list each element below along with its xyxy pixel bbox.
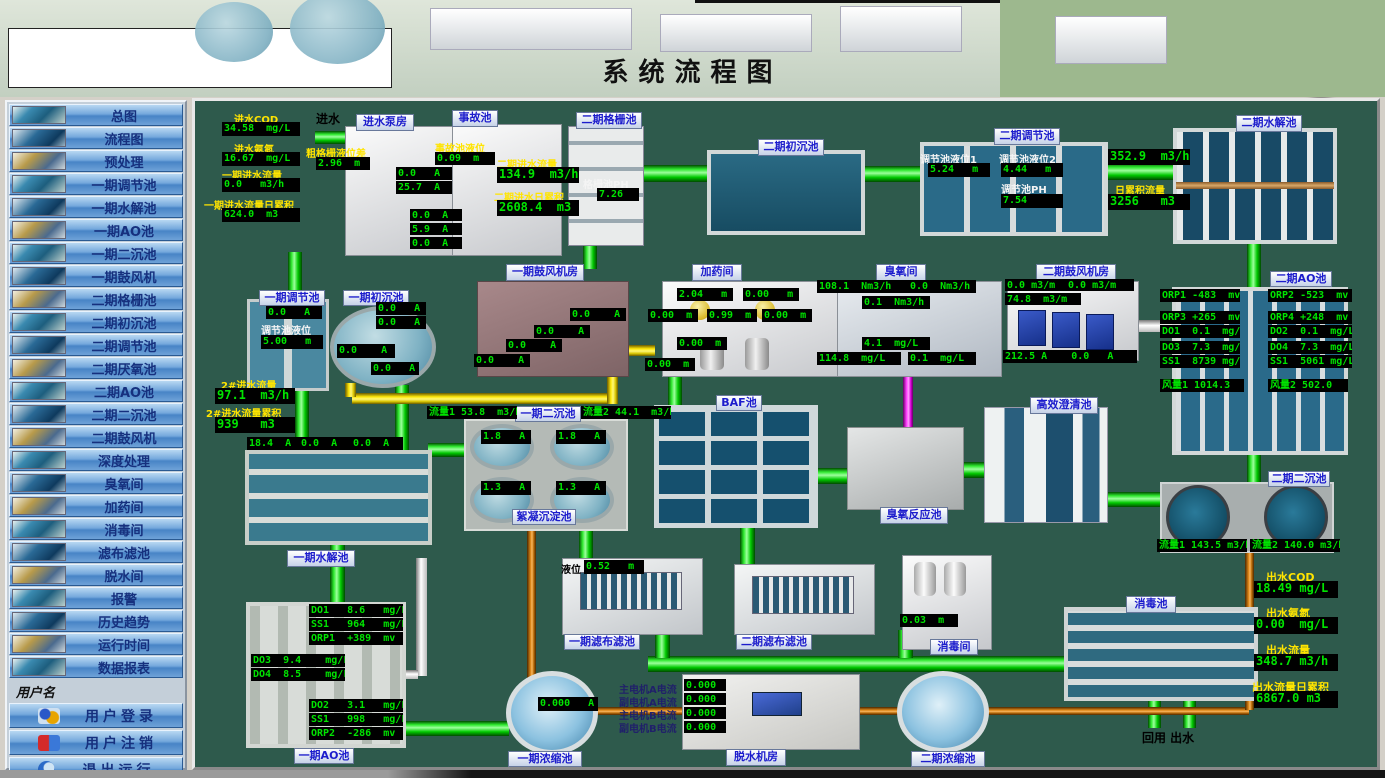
ao2-value: ORP1 -483 mv [1160, 289, 1240, 302]
pipe [405, 721, 509, 736]
nav-thumbnail-icon [12, 566, 66, 584]
reg1-current: 0.0 A [266, 306, 322, 319]
equipment-label: 脱水机房 [726, 749, 786, 766]
sidebar-item[interactable]: 二期初沉池 [9, 311, 183, 333]
ao1-value: SS1 964 mg/L [309, 618, 403, 631]
header-tank-icon [195, 2, 273, 62]
sidebar-item[interactable]: 数据报表 [9, 656, 183, 678]
clar1-flow2: 流量2 44.1 m3/h [581, 406, 671, 419]
sidebar-item[interactable]: 臭氧间 [9, 472, 183, 494]
pump-current: 25.7 A [396, 181, 452, 194]
pump-current: 0.0 A [410, 209, 462, 221]
ao1-value: ORP2 -286 mv [309, 727, 403, 740]
equipment-label: 一期滤布滤池 [564, 634, 640, 650]
disinfection-tank [1064, 607, 1258, 701]
sidebar-item[interactable]: 一期AO池 [9, 219, 183, 241]
pump-current: 0.0 A [299, 437, 351, 450]
inlet-total1-value: 624.0 m3 [222, 208, 300, 222]
blower1-current: 0.0 A [570, 308, 626, 321]
grid-ph-value: 7.26 [597, 188, 639, 201]
dosing-level: 0.00 m [762, 309, 812, 322]
equipment-label: 一期二沉池 [515, 406, 581, 422]
equipment-label: 一期鼓风机房 [506, 264, 584, 281]
ao2-value: ORP3 +265 mv [1160, 311, 1240, 324]
equipment-label: 二期水解池 [1236, 115, 1302, 132]
pipe [428, 443, 466, 457]
sidebar-item[interactable]: 一期鼓风机 [9, 265, 183, 287]
thickener-2 [897, 671, 989, 753]
sidebar-item[interactable]: 加药间 [9, 495, 183, 517]
equipment-label: 一期水解池 [287, 550, 355, 567]
nav-thumbnail-icon [12, 543, 66, 561]
tan-pipe [1176, 182, 1334, 189]
pump-current: 18.4 A [247, 437, 299, 450]
primary-tank-2 [707, 150, 865, 235]
clar2-flow2: 流量2 140.0 m3/h [1250, 539, 1340, 552]
pump-current: 5.9 A [410, 223, 462, 235]
nav-thumbnail-icon [12, 244, 66, 262]
nav-thumbnail-icon [12, 405, 66, 423]
nav-thumbnail-icon [12, 175, 66, 193]
ozone-value: 114.8 mg/L [817, 352, 901, 365]
primary1-current: 0.0 A [376, 316, 426, 329]
ao1-value: DO2 3.1 mg/L [309, 699, 403, 712]
sidebar-item[interactable]: 历史趋势 [9, 610, 183, 632]
nav-thumbnail-icon [12, 267, 66, 285]
inflow2-flow: 97.1 m3/h [215, 388, 295, 404]
nav-thumbnail-icon [12, 336, 66, 354]
nav-thumbnail-icon [12, 106, 66, 124]
equipment-label: 臭氧间 [876, 264, 926, 281]
inlet-nh3-value: 16.67 mg/L [222, 152, 300, 166]
reg1-lv: 5.00 m [261, 335, 323, 349]
reg2-lv2: 4.44 m [1001, 163, 1063, 177]
dewater-motor-current: 0.000 [684, 693, 726, 705]
sidebar-item[interactable]: 运行时间 [9, 633, 183, 655]
pipe [640, 165, 710, 182]
blower-icon [1018, 310, 1046, 346]
sidebar-item[interactable]: 预处理 [9, 150, 183, 172]
sidebar: 总图 流程图 预处理 一期调节池 [5, 100, 187, 770]
sidebar-item[interactable]: 报警 [9, 587, 183, 609]
username-label: 用户名 [16, 682, 184, 701]
ao2-value: DO3 7.3 mg/L [1160, 341, 1240, 354]
inlet-flow1-value: 0.0 m3/h [222, 178, 300, 192]
inlet-label: 进水 [316, 110, 340, 127]
pipe [648, 656, 1066, 672]
ozone-value: 0.1 Nm3/h [862, 296, 930, 309]
equipment-label: 二期AO池 [1270, 271, 1332, 287]
blower1-current: 0.0 A [506, 339, 562, 352]
header-building-icon [660, 14, 812, 52]
sidebar-item[interactable]: 二期厌氧池 [9, 357, 183, 379]
ao2-value: DO4 7.3 mg/L [1268, 341, 1352, 354]
dosing-level: 0.00 m [648, 309, 698, 322]
pump-current: 0.0 A [351, 437, 403, 450]
outlet-cod: 18.49 mg/L [1254, 581, 1338, 598]
ao2-value: DO2 0.1 mg/L [1268, 325, 1352, 338]
equipment-label: 絮凝沉淀池 [512, 509, 576, 525]
ao1-value: DO4 8.5 mg/L [251, 668, 345, 681]
pipe [668, 374, 682, 408]
nav-thumbnail-icon [12, 451, 66, 469]
reg2-ph: 7.54 [1001, 194, 1063, 208]
dosing-level: 0.99 m [707, 309, 757, 322]
dosing-level: 0.00 m [743, 288, 799, 301]
hydro2-flow: 352.9 m3/h [1108, 149, 1190, 165]
dosing-level: 2.04 m [677, 288, 733, 301]
sidebar-item[interactable]: 流程图 [9, 127, 183, 149]
nav-thumbnail-icon [12, 382, 66, 400]
sidebar-item[interactable]: 滤布滤池 [9, 541, 183, 563]
pipe [1105, 163, 1177, 180]
outlet-nh3: 0.00 mg/L [1254, 617, 1338, 634]
sidebar-item[interactable]: 二期鼓风机 [9, 426, 183, 448]
equipment-label: 臭氧反应池 [880, 507, 948, 524]
sidebar-item[interactable]: 一期调节池 [9, 173, 183, 195]
login-button[interactable]: 用户登录 [9, 703, 183, 728]
ao2-value: ORP4 +248 mv [1268, 311, 1352, 324]
logout-button[interactable]: 用户注销 [9, 730, 183, 755]
equipment-label: BAF池 [716, 395, 762, 411]
header-building-icon [430, 8, 632, 50]
nav-thumbnail-icon [12, 497, 66, 515]
ao2-value: SS1 8739 mg/L [1160, 355, 1240, 368]
sidebar-item[interactable]: 一期水解池 [9, 196, 183, 218]
equipment-label: 二期格栅池 [576, 112, 642, 129]
accident-level: 0.09 m [435, 152, 495, 165]
nav-thumbnail-icon [12, 428, 66, 446]
outlet-flow: 348.7 m3/h [1254, 654, 1338, 671]
primary1-current: 0.0 A [337, 344, 395, 358]
nav-thumbnail-icon [12, 474, 66, 492]
ao1-value: DO1 8.6 mg/L [309, 604, 403, 617]
clar2-flow1: 流量1 143.5 m3/h [1157, 539, 1247, 552]
inflow2-total: 939 m3 [215, 417, 295, 433]
ao2-value: DO1 0.1 mg/L [1160, 325, 1240, 338]
blower-icon [1052, 312, 1080, 348]
pipe [816, 468, 850, 484]
equipment-label: 消毒间 [930, 639, 978, 655]
blower1-current: 0.0 A [474, 354, 530, 367]
clar1-current: 1.8 A [481, 430, 531, 444]
blower1-current: 0.0 A [534, 325, 590, 338]
equipment-label: 事故池 [452, 110, 498, 127]
blower2-flow: 74.8 m3/m [1005, 293, 1081, 305]
pipe-white [416, 558, 427, 676]
logout-icon [38, 735, 60, 751]
login-icon [38, 708, 60, 724]
ao1-value: SS1 998 mg/L [309, 713, 403, 726]
nav-thumbnail-icon [12, 635, 66, 653]
nav-thumbnail-icon [12, 658, 66, 676]
disinfect-cylinder-icon [914, 562, 936, 596]
pump-current: 0.0 A [410, 237, 462, 249]
pipe [583, 243, 597, 269]
pump-current: 0.0 A [396, 167, 452, 180]
pipe-sludge-yellow [345, 383, 356, 397]
clar1-current: 1.3 A [556, 481, 606, 495]
nav-thumbnail-icon [12, 198, 66, 216]
coarse-screen-level: 2.96 m [316, 157, 370, 170]
equipment-label: 二期二沉池 [1268, 471, 1330, 487]
sidebar-item[interactable]: 总图 [9, 104, 183, 126]
equipment-label: 高效澄清池 [1030, 397, 1098, 414]
pipe-sludge-yellow [352, 393, 618, 404]
primary1-current: 0.0 A [371, 362, 419, 375]
baf-tank [654, 405, 818, 528]
blower-icon [1086, 314, 1114, 350]
ao1-value: DO3 9.4 mg/L [251, 654, 345, 667]
ozone-value: 0.1 mg/L [908, 352, 976, 365]
clar1-current: 1.8 A [556, 430, 606, 444]
outlet-total: 6867.0 m3 [1254, 691, 1338, 708]
nav-thumbnail-icon [12, 589, 66, 607]
nav-thumbnail-icon [12, 612, 66, 630]
nav-thumbnail-icon [12, 129, 66, 147]
thick1-current: 0.000 A [538, 697, 598, 711]
sidebar-item[interactable]: 深度处理 [9, 449, 183, 471]
disinfect-room-level: 0.03 m [900, 614, 958, 627]
ozone-value: 4.1 mg/L [862, 337, 930, 350]
pipe [1247, 243, 1261, 291]
sidebar-item[interactable]: 二期调节池 [9, 334, 183, 356]
inlet-cod-value: 34.58 mg/L [222, 122, 300, 136]
equipment-label: 一期调节池 [259, 290, 325, 306]
window-edge [0, 770, 1385, 778]
dewater-motor-current: 0.000 [684, 721, 726, 733]
sidebar-item[interactable]: 脱水间 [9, 564, 183, 586]
nav-thumbnail-icon [12, 221, 66, 239]
pipe [1105, 492, 1162, 507]
nav-thumbnail-icon [12, 152, 66, 170]
equipment-label: 二期滤布滤池 [736, 634, 812, 650]
cloth1-level-label: 液位 [561, 561, 581, 576]
pipe-inlet [315, 131, 347, 144]
dewater-motor-current: 0.000 [684, 679, 726, 691]
ao2-value: ORP2 -523 mv [1268, 289, 1352, 302]
equipment-label: 进水泵房 [356, 114, 414, 131]
ozone-value: 0.0 Nm3/h [908, 280, 976, 293]
dosing-level: 0.00 m [645, 358, 695, 371]
sidebar-item[interactable]: 消毒间 [9, 518, 183, 540]
disinfect-cylinder-icon [944, 562, 966, 596]
high-efficiency-clarifier [984, 407, 1108, 523]
nav-menu: 总图 流程图 预处理 一期调节池 [8, 104, 184, 678]
ozone-value: 108.1 Nm3/h [817, 280, 911, 293]
dosing-cylinder-icon [745, 338, 769, 370]
pipe [740, 526, 755, 566]
equipment-label: 一期AO池 [294, 748, 354, 764]
equipment-label: 二期浓缩池 [911, 751, 985, 767]
header-building-icon [1055, 16, 1167, 64]
sidebar-item[interactable]: 二期AO池 [9, 380, 183, 402]
sidebar-item[interactable]: 二期二沉池 [9, 403, 183, 425]
hydrolysis-tank-1 [245, 450, 432, 545]
nav-thumbnail-icon [12, 520, 66, 538]
dewater-machine-icon [752, 692, 802, 716]
dewater-motor-current: 0.000 [684, 707, 726, 719]
flow2-value: 134.9 m3/h [497, 167, 579, 183]
reuse-outfall-label: 回用 出水 [1142, 729, 1194, 746]
ao1-value: ORP1 +389 mv [309, 632, 403, 645]
header-building-icon [840, 6, 962, 52]
ozone-reaction-tank [847, 427, 964, 510]
equipment-label: 二期初沉池 [758, 139, 824, 156]
nav-thumbnail-icon [12, 313, 66, 331]
clar1-flow1: 流量1 53.8 m3/h [427, 406, 517, 419]
equipment-label: 加药间 [692, 264, 742, 281]
pipe [865, 166, 922, 182]
equipment-label: 一期浓缩池 [508, 751, 582, 767]
dosing-level: 0.00 m [677, 337, 727, 350]
blower2-flow: 0.0 m3/m [1066, 279, 1134, 291]
sidebar-item[interactable]: 一期二沉池 [9, 242, 183, 264]
sidebar-item[interactable]: 二期格栅池 [9, 288, 183, 310]
blower2-currents: 212.5 A 0.0 A [1003, 350, 1137, 363]
dewater-motor-label: 副电机B电流 [619, 720, 677, 735]
clar1-current: 1.3 A [481, 481, 531, 495]
equipment-label: 二期调节池 [994, 128, 1060, 145]
filter-discs-icon [752, 576, 854, 614]
filter-discs-icon [580, 572, 682, 610]
ao2-value: SS1 5061 mg/L [1268, 355, 1352, 368]
thickener-1 [506, 671, 598, 755]
cloth1-level: 0.52 m [584, 560, 644, 574]
ao2-airflow: 风量2 502.0 [1268, 379, 1348, 392]
hydro2-total: 3256 m3 [1108, 194, 1190, 210]
pipe [579, 528, 593, 562]
equipment-label: 消毒池 [1126, 596, 1176, 613]
blower2-flow: 0.0 m3/m [1005, 279, 1067, 291]
ao2-airflow: 风量1 1014.3 [1160, 379, 1244, 392]
primary1-current: 0.0 A [376, 302, 426, 315]
reg2-lv1: 5.24 m [928, 163, 990, 177]
nav-thumbnail-icon [12, 359, 66, 377]
nav-thumbnail-icon [12, 290, 66, 308]
total2-value: 2608.4 m3 [497, 200, 579, 216]
